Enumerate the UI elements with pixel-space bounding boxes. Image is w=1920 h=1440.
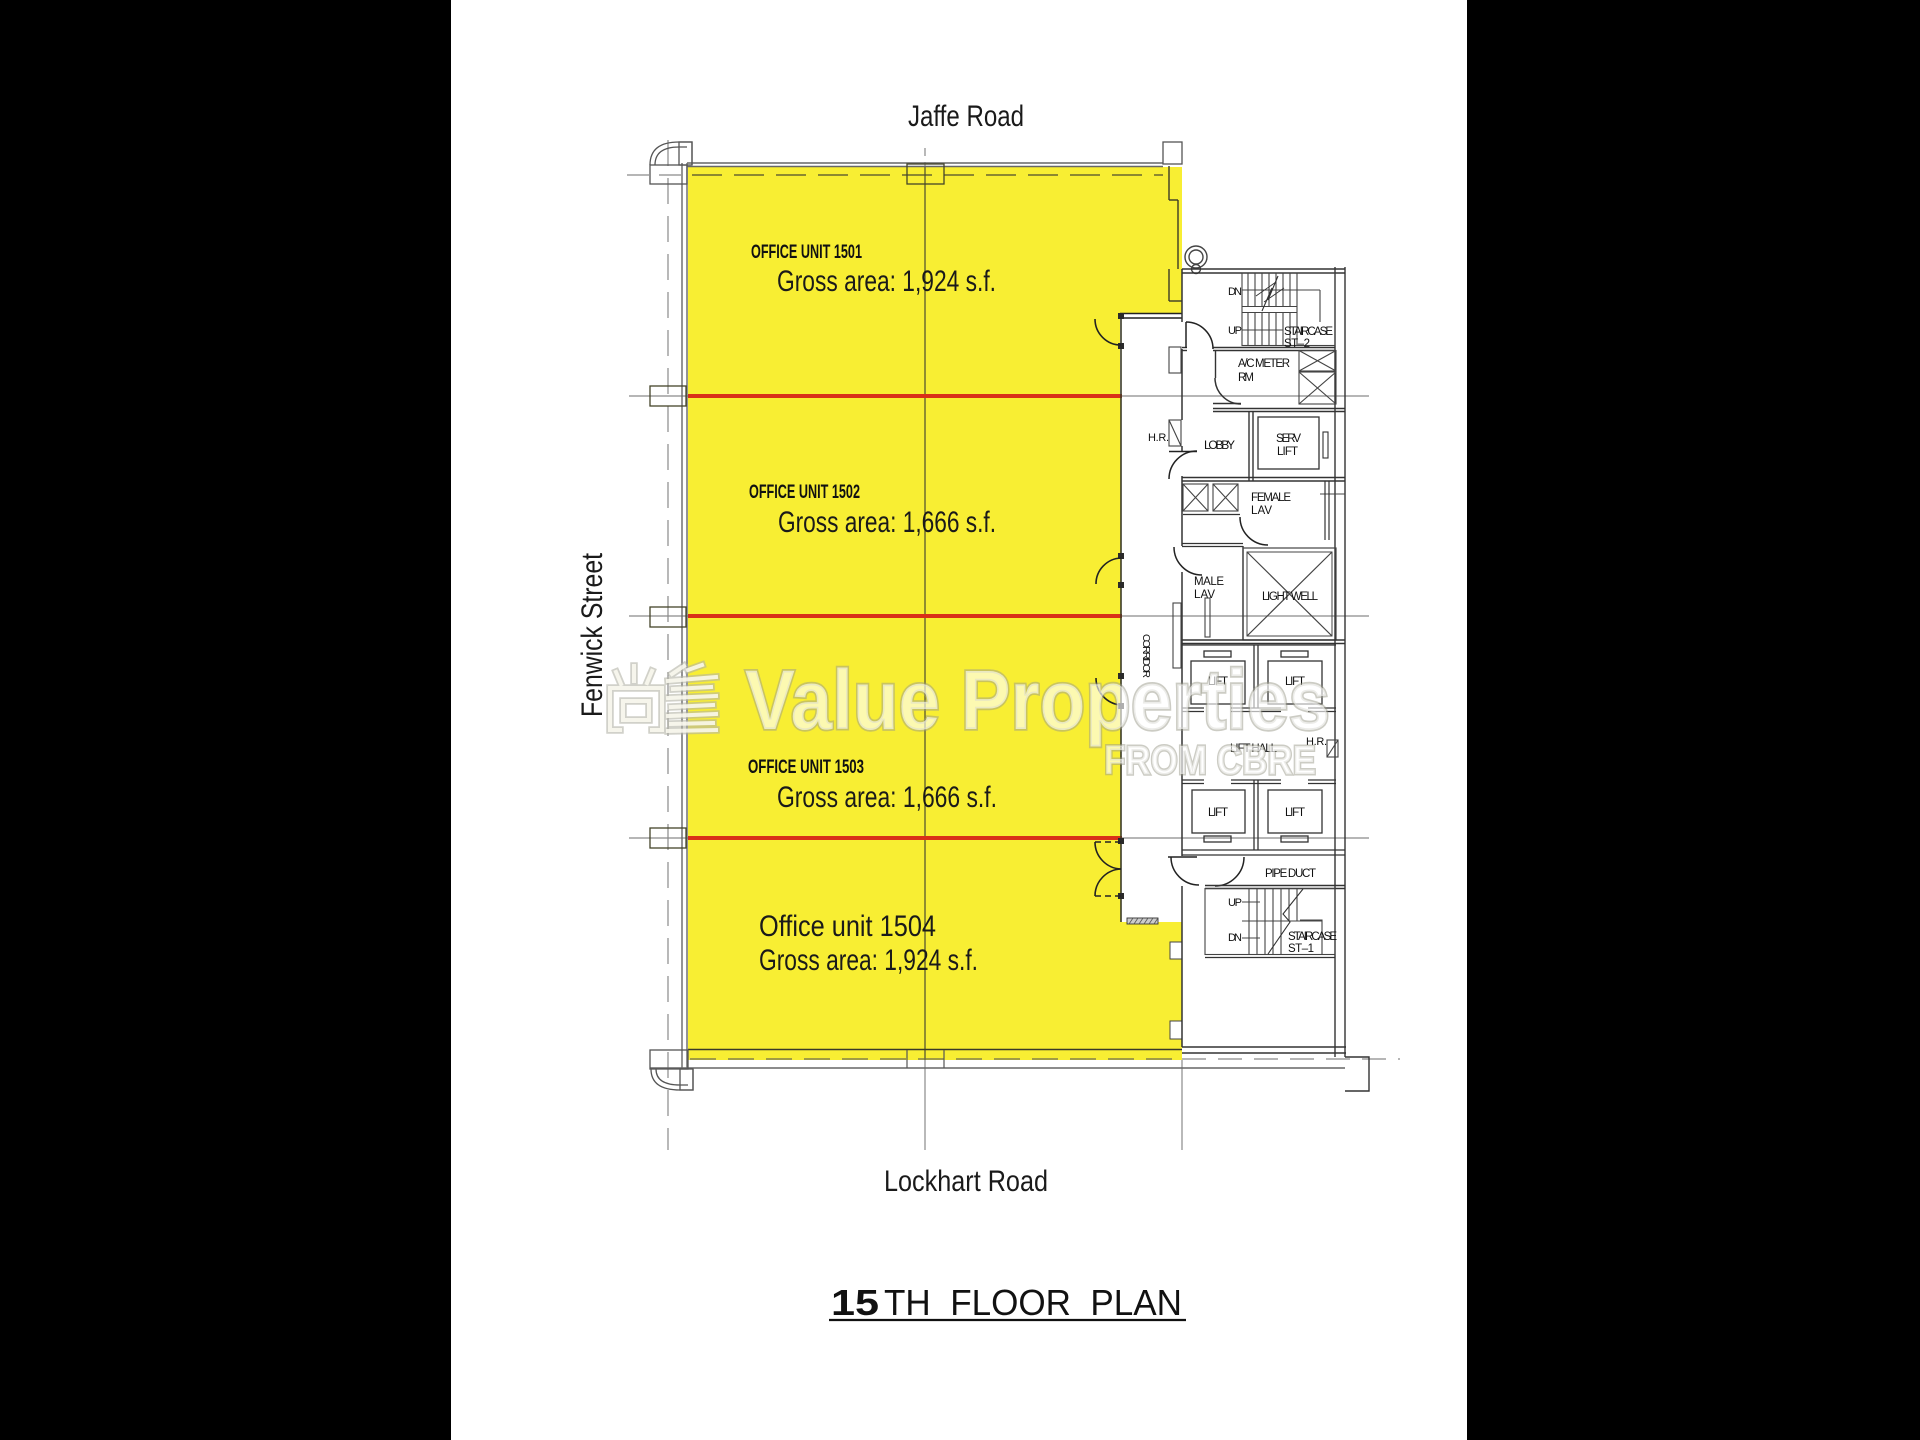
svg-text:Office unit 1504: Office unit 1504 bbox=[759, 910, 936, 943]
svg-text:ST–1: ST–1 bbox=[1288, 943, 1314, 955]
svg-text:DN: DN bbox=[1228, 286, 1242, 298]
svg-text:SERV: SERV bbox=[1276, 433, 1301, 445]
svg-text:DN: DN bbox=[1228, 932, 1242, 944]
svg-text:Gross area: 1,666 s.f.: Gross area: 1,666 s.f. bbox=[778, 506, 996, 539]
svg-text:TH FLOOR PLAN: TH FLOOR PLAN bbox=[884, 1282, 1182, 1323]
svg-text:A/C METER: A/C METER bbox=[1238, 358, 1290, 370]
svg-text:15: 15 bbox=[831, 1282, 879, 1323]
svg-text:Jaffe Road: Jaffe Road bbox=[908, 100, 1024, 133]
svg-text:H.R.: H.R. bbox=[1148, 432, 1169, 444]
svg-text:OFFICE UNIT 1501: OFFICE UNIT 1501 bbox=[751, 242, 862, 263]
svg-text:LIGHT WELL: LIGHT WELL bbox=[1262, 591, 1319, 603]
svg-text:RM: RM bbox=[1238, 372, 1254, 384]
svg-text:Gross area: 1,924 s.f.: Gross area: 1,924 s.f. bbox=[759, 944, 978, 977]
svg-text:STAIRCASE: STAIRCASE bbox=[1284, 326, 1333, 338]
svg-text:LIFT: LIFT bbox=[1208, 807, 1228, 819]
svg-text:ST–2: ST–2 bbox=[1284, 338, 1310, 350]
svg-text:OFFICE UNIT 1503: OFFICE UNIT 1503 bbox=[748, 757, 864, 778]
svg-text:Lockhart Road: Lockhart Road bbox=[884, 1165, 1048, 1198]
svg-text:LAV: LAV bbox=[1251, 505, 1272, 517]
svg-text:LIFT: LIFT bbox=[1285, 807, 1305, 819]
svg-text:MALE: MALE bbox=[1194, 576, 1224, 588]
svg-text:FROM CBRE: FROM CBRE bbox=[1104, 737, 1316, 783]
svg-text:Fenwick Street: Fenwick Street bbox=[576, 552, 609, 717]
svg-text:LIFT: LIFT bbox=[1277, 446, 1298, 458]
svg-text:Gross area: 1,666 s.f.: Gross area: 1,666 s.f. bbox=[777, 781, 997, 814]
svg-text:UP: UP bbox=[1228, 325, 1242, 337]
svg-text:LOBBY: LOBBY bbox=[1204, 438, 1235, 452]
svg-text:OFFICE UNIT 1502: OFFICE UNIT 1502 bbox=[749, 482, 860, 503]
svg-text:FEMALE: FEMALE bbox=[1251, 492, 1291, 504]
svg-text:Gross area: 1,924 s.f.: Gross area: 1,924 s.f. bbox=[777, 265, 996, 298]
svg-text:PIPE DUCT: PIPE DUCT bbox=[1265, 868, 1316, 880]
svg-text:Value Properties: Value Properties bbox=[745, 653, 1330, 747]
svg-text:STAIRCASE: STAIRCASE bbox=[1288, 931, 1337, 943]
svg-text:UP: UP bbox=[1228, 897, 1242, 909]
